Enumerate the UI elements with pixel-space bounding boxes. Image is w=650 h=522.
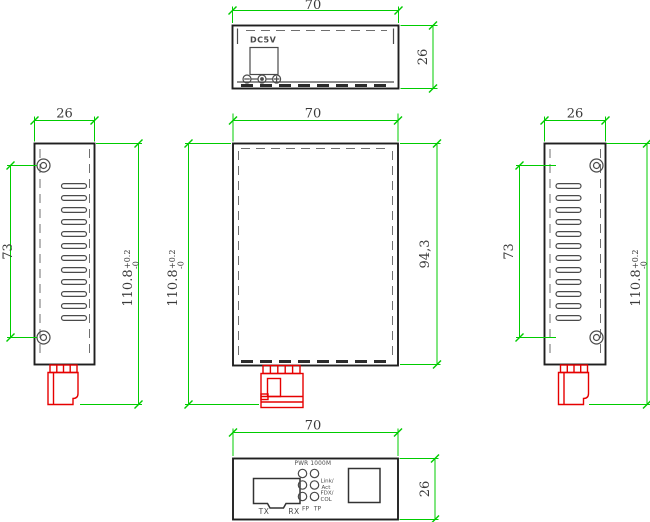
- dim-text: 73: [502, 243, 517, 260]
- dim-text: 26: [567, 107, 584, 122]
- dim-text: 94,3: [418, 240, 433, 269]
- dc-jack-label: DC5V: [250, 36, 277, 45]
- dim-text: 26: [416, 49, 431, 66]
- tp-label: TP: [313, 506, 322, 513]
- dim-text: 70: [305, 0, 322, 13]
- dim-text: 110.8: [121, 269, 136, 306]
- fp-label: FP: [302, 506, 309, 513]
- dim-tol-lower: -0: [640, 261, 649, 269]
- dim-text: 110.8: [166, 269, 181, 306]
- led-link-label: Link/: [321, 479, 334, 485]
- dim-tol-lower: -0: [177, 261, 186, 269]
- background: [0, 0, 650, 522]
- led-fdx-label: FDX/: [321, 491, 334, 497]
- dim-text: 73: [1, 243, 16, 260]
- dim-text: 26: [418, 481, 433, 498]
- drawing-canvas: DC5V 70 26: [0, 0, 650, 522]
- led-col-label: COL: [321, 497, 333, 503]
- led-header-label: PWR 1000M: [295, 461, 332, 467]
- rx-label: RX: [288, 507, 299, 516]
- dim-text: 110.8: [629, 269, 644, 306]
- dim-tol-lower: -0: [132, 261, 141, 269]
- engineering-drawing: DC5V 70 26: [0, 0, 650, 522]
- dim-text: 70: [305, 419, 322, 434]
- dim-text: 70: [305, 107, 322, 122]
- dim-text: 26: [56, 107, 73, 122]
- tx-label: TX: [258, 507, 270, 516]
